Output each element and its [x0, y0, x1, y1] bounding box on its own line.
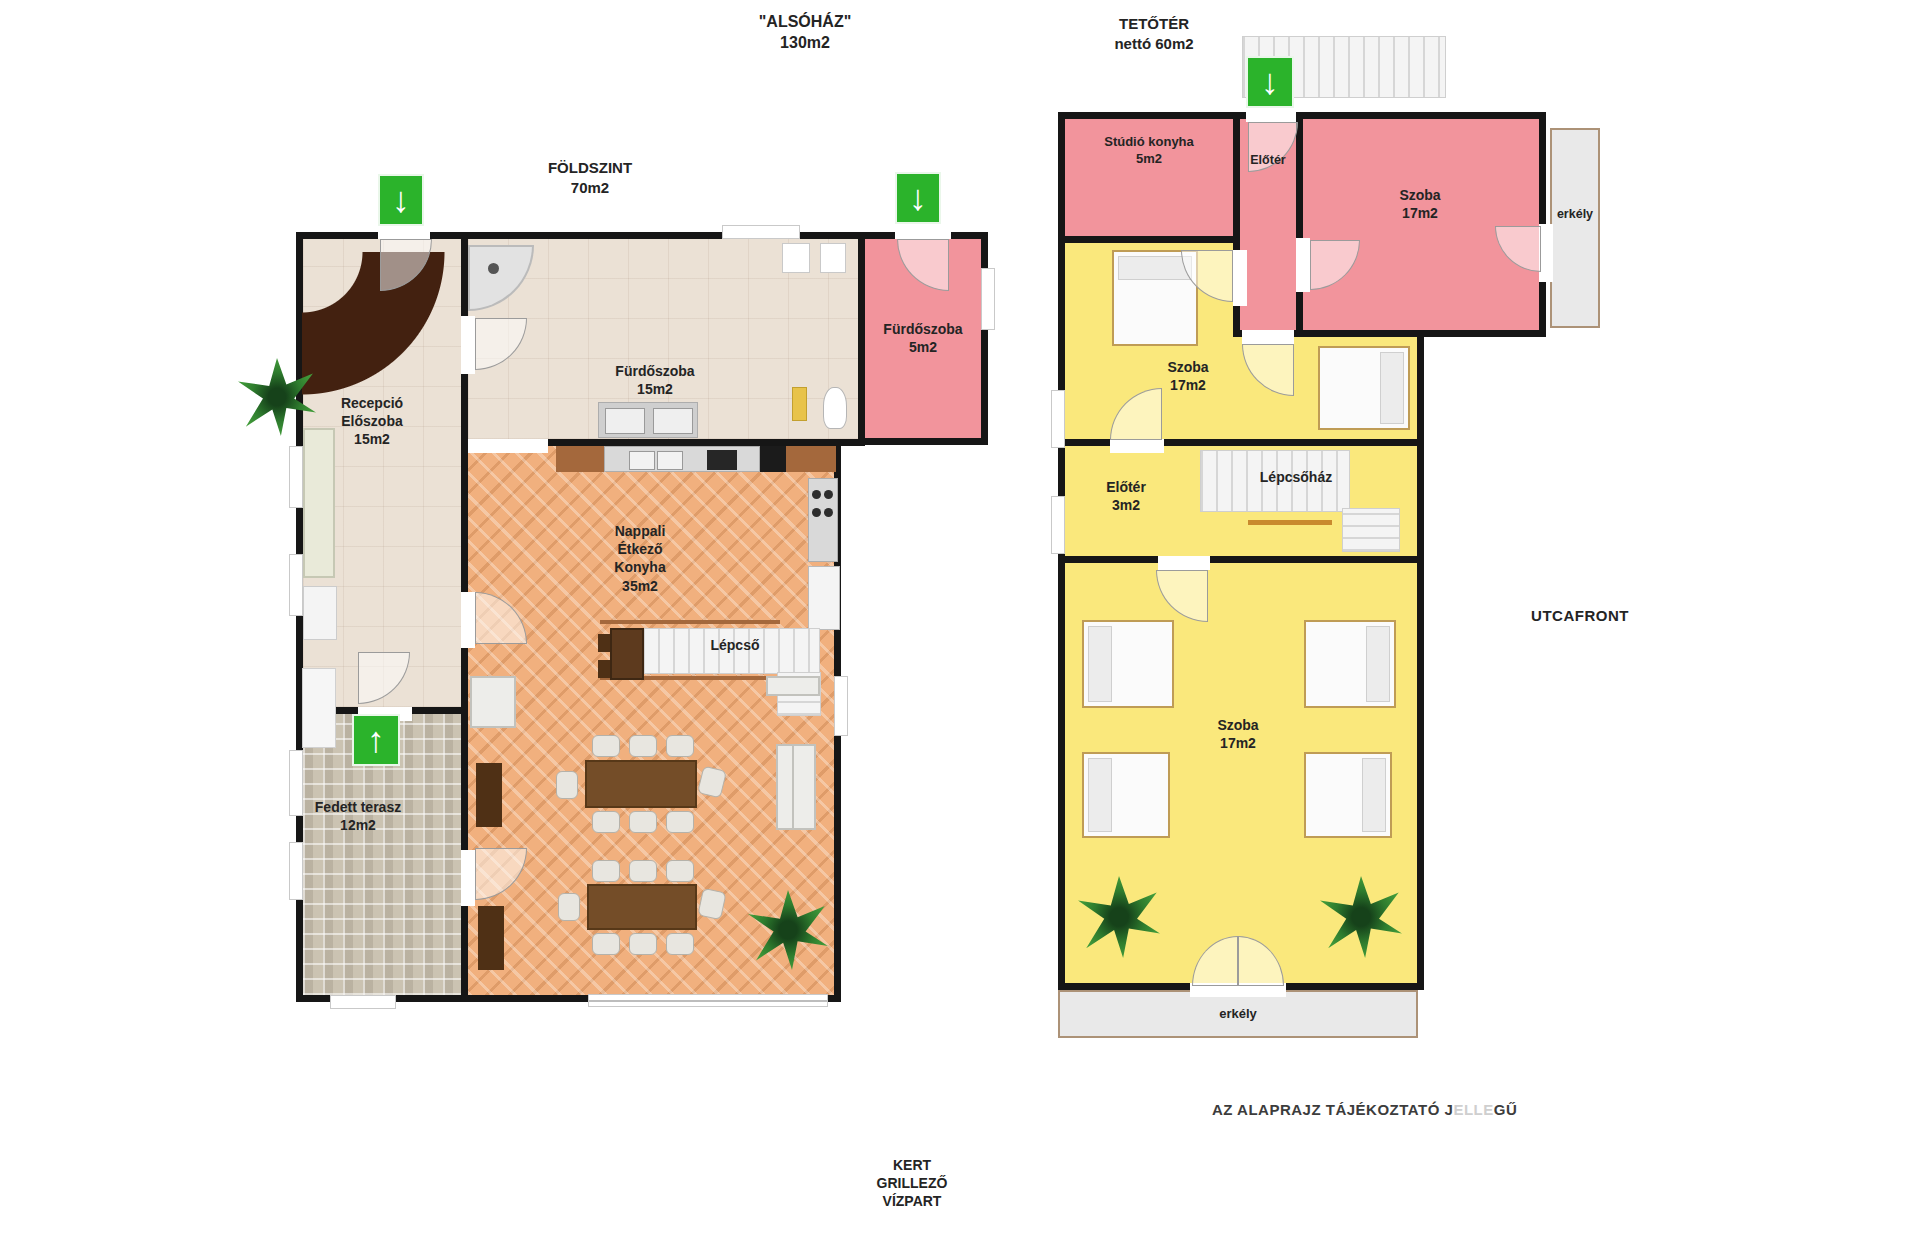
bed-pillow	[1362, 758, 1386, 832]
balcony-bottom-label: erkély	[1219, 1006, 1257, 1023]
attic-entrance-arrow-down-icon: ↓	[1246, 56, 1294, 108]
chair	[629, 933, 657, 955]
window	[289, 446, 303, 508]
kitchen-counter	[604, 446, 760, 472]
stove	[707, 450, 737, 470]
balcony-right	[1550, 128, 1600, 328]
dining-table	[585, 760, 697, 808]
kitchen-cabinet	[556, 446, 604, 472]
dining-table	[587, 884, 697, 930]
chair	[592, 860, 620, 882]
chair	[666, 811, 694, 833]
chair	[666, 735, 694, 757]
chair	[592, 735, 620, 757]
attic-title-line1: TETŐTÉR	[1059, 14, 1249, 34]
bed-pillow	[1088, 758, 1112, 832]
living-label-line1: Nappali	[560, 522, 720, 540]
disclaimer-part1: AZ ALAPRAJZ TÁJÉKOZTATÓ J	[1212, 1101, 1453, 1118]
bedroom-pink-label: Szoba 17m2	[1340, 186, 1500, 222]
attic-title-line2: nettó 60m2	[1059, 34, 1249, 54]
entrance-door-gap	[895, 225, 951, 239]
door-gap	[1233, 250, 1247, 306]
hall-middle-area: 3m2	[1060, 496, 1192, 514]
disclaimer-part3: GŰ	[1494, 1101, 1518, 1118]
bathroom-small-label: Fürdőszoba 5m2	[858, 320, 988, 356]
towel	[792, 387, 807, 421]
entrance-door-gap	[378, 225, 430, 239]
fridge	[808, 566, 840, 630]
chair	[666, 933, 694, 955]
lower-house-title-line1: "ALSÓHÁZ"	[695, 12, 915, 33]
chair-dark	[598, 634, 610, 652]
terrace-cabinet	[302, 668, 336, 748]
window	[289, 554, 303, 616]
passage-gap	[468, 439, 548, 453]
door-gap	[461, 316, 475, 374]
room-studio-kitchen	[1058, 112, 1240, 243]
door-gap	[1242, 330, 1294, 344]
bed	[1304, 752, 1392, 838]
bed	[1082, 752, 1170, 838]
double-sink	[598, 402, 698, 438]
stairs-label: Lépcső	[660, 636, 810, 654]
sliding-door	[588, 994, 828, 1007]
studio-kitchen-label: Stúdió konyha 5m2	[1063, 134, 1235, 168]
bedroom-bottom-name: Szoba	[1158, 716, 1318, 734]
chair	[629, 811, 657, 833]
cabinet	[303, 586, 337, 640]
bathroom-large-label: Fürdőszoba 15m2	[575, 362, 735, 398]
chair	[629, 735, 657, 757]
studio-kitchen-name: Stúdió konyha	[1063, 134, 1235, 151]
studio-kitchen-area: 5m2	[1063, 151, 1235, 168]
bathroom-small-area: 5m2	[858, 338, 988, 356]
terrace-arrow-up-icon: ↑	[352, 714, 400, 766]
bedroom-pink-area: 17m2	[1340, 204, 1500, 222]
ground-floor-title-line1: FÖLDSZINT	[500, 158, 680, 178]
sink-basin	[653, 408, 693, 434]
entrance-arrow-down-icon: ↓	[378, 174, 424, 226]
kitchen-appliance	[760, 446, 786, 472]
chair	[629, 860, 657, 882]
curved-cabinet	[302, 252, 450, 400]
burner-icon	[812, 490, 821, 499]
balcony-right-label: erkély	[1541, 206, 1609, 222]
window	[722, 225, 800, 239]
kitchen-sink	[657, 451, 683, 470]
bathroom-large-name: Fürdőszoba	[575, 362, 735, 380]
garden-line2: GRILLEZŐ	[827, 1174, 997, 1192]
arrow-glyph: ↓	[392, 182, 410, 218]
terrace-label-name: Fedett terasz	[272, 798, 444, 816]
bench	[478, 906, 504, 970]
bedroom-middle-name: Szoba	[1108, 358, 1268, 376]
chair	[556, 771, 578, 799]
bed	[1304, 620, 1396, 708]
arrow-glyph: ↑	[367, 722, 385, 758]
bench	[476, 763, 502, 827]
burner-icon	[824, 508, 833, 517]
garden-line1: KERT	[827, 1156, 997, 1174]
sofa	[766, 676, 820, 696]
sofa	[303, 428, 335, 578]
chair	[558, 893, 580, 921]
small-table	[610, 628, 644, 680]
bed-pillow	[1366, 626, 1390, 702]
sink-basin	[605, 408, 645, 434]
ground-floor-title: FÖLDSZINT 70m2	[500, 158, 680, 197]
window	[1051, 390, 1065, 448]
bed	[1082, 620, 1174, 708]
bedroom-bottom-label: Szoba 17m2	[1158, 716, 1318, 752]
chair	[592, 933, 620, 955]
bedroom-pink-name: Szoba	[1340, 186, 1500, 204]
attic-title: TETŐTÉR nettó 60m2	[1059, 14, 1249, 53]
disclaimer-text: AZ ALAPRAJZ TÁJÉKOZTATÓ JELLEGŰ	[1212, 1100, 1632, 1120]
bathroom-small-name: Fürdőszoba	[858, 320, 988, 338]
door-gap	[1539, 224, 1553, 282]
chair	[592, 811, 620, 833]
bed-pillow	[1088, 626, 1112, 702]
sofa	[776, 744, 816, 830]
reception-label-line1: Recepció	[292, 394, 452, 412]
stairwell-label: Lépcsőház	[1216, 468, 1376, 486]
balcony-bottom: erkély	[1058, 990, 1418, 1038]
door-gap	[461, 850, 475, 906]
door-gap	[1110, 439, 1164, 453]
window	[330, 995, 396, 1009]
kitchen-cabinet	[786, 446, 836, 472]
bedroom-middle-area: 17m2	[1108, 376, 1268, 394]
bed-pillow	[1380, 352, 1404, 424]
bed-pillow	[1118, 256, 1192, 280]
living-label-line3: Konyha	[560, 558, 720, 576]
stairwell-stairs-turn	[1342, 508, 1400, 552]
terrace-label-area: 12m2	[272, 816, 444, 834]
room-bedroom-pink	[1296, 112, 1546, 337]
reception-label-area: 15m2	[292, 430, 452, 448]
garden-line3: VÍZPART	[827, 1192, 997, 1210]
skylight	[782, 243, 810, 273]
sofa	[470, 676, 516, 728]
entrance-arrow-down-icon: ↓	[895, 172, 941, 224]
reception-label-line2: Előszoba	[292, 412, 452, 430]
shower-drain-icon	[488, 263, 499, 274]
bathroom-large-area: 15m2	[575, 380, 735, 398]
garden-label: KERT GRILLEZŐ VÍZPART	[827, 1156, 997, 1211]
ground-floor-title-line2: 70m2	[500, 178, 680, 198]
hall-middle-name: Előtér	[1060, 478, 1192, 496]
window	[834, 676, 848, 736]
bedroom-middle-label: Szoba 17m2	[1108, 358, 1268, 394]
lower-house-title: "ALSÓHÁZ" 130m2	[695, 12, 915, 54]
terrace-label: Fedett terasz 12m2	[272, 798, 444, 834]
door-gap	[461, 592, 475, 648]
living-label-area: 35m2	[560, 577, 720, 595]
bedroom-bottom-area: 17m2	[1158, 734, 1318, 752]
living-label-line2: Étkező	[560, 540, 720, 558]
entrance-door-gap	[1246, 108, 1296, 122]
toilet	[823, 387, 847, 429]
disclaimer-part2-faded: ELLE	[1453, 1101, 1493, 1118]
hall-top-label: Előtér	[1230, 152, 1306, 168]
door-gap	[1296, 238, 1310, 292]
street-front-label: UTCAFRONT	[1500, 606, 1660, 626]
burner-icon	[812, 508, 821, 517]
chair-dark	[598, 660, 610, 678]
stair-rail	[600, 620, 780, 624]
kitchen-sink	[629, 451, 655, 470]
chair	[666, 860, 694, 882]
floor-plan-canvas: "ALSÓHÁZ" 130m2 FÖLDSZINT 70m2 TETŐTÉR n…	[0, 0, 1920, 1246]
door-gap	[1158, 556, 1210, 570]
lower-house-title-line2: 130m2	[695, 33, 915, 54]
bed	[1318, 346, 1410, 430]
arrow-glyph: ↓	[909, 180, 927, 216]
living-label: Nappali Étkező Konyha 35m2	[560, 522, 720, 595]
window	[289, 842, 303, 900]
hall-middle-label: Előtér 3m2	[1060, 478, 1192, 514]
skylight	[820, 243, 846, 273]
arrow-glyph: ↓	[1261, 64, 1279, 100]
burner-icon	[824, 490, 833, 499]
stair-rail	[1248, 520, 1332, 525]
reception-label: Recepció Előszoba 15m2	[292, 394, 452, 449]
